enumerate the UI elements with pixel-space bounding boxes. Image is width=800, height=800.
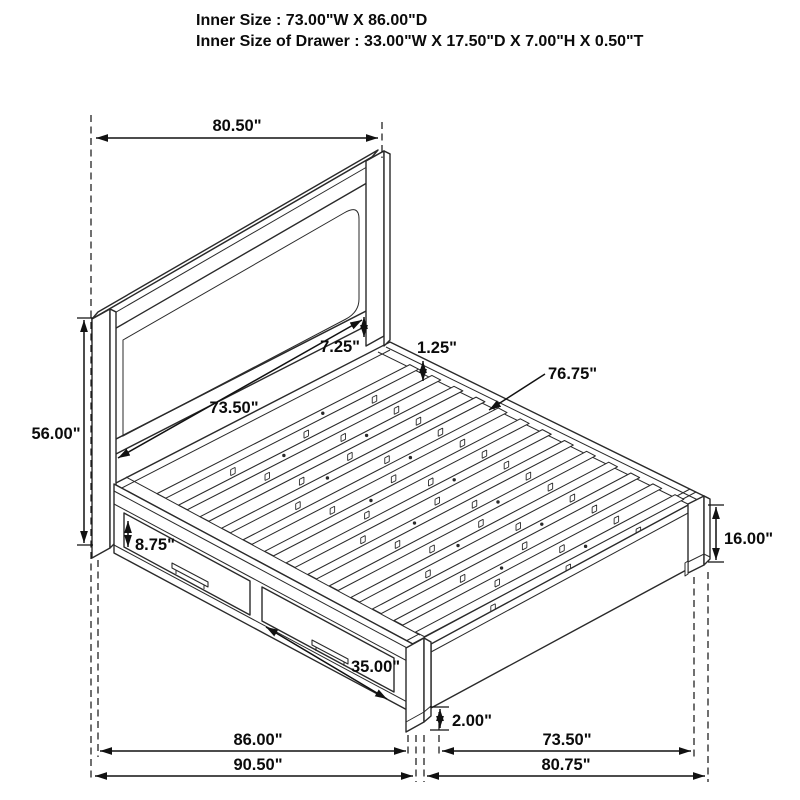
dim-slat-length-label: 76.75"	[548, 365, 597, 383]
title-line-2: Inner Size of Drawer : 33.00"W X 17.50"D…	[196, 33, 644, 50]
dim-headboard-width-label: 80.50"	[212, 117, 261, 135]
dim-slat-thickness-label: 1.25"	[417, 339, 457, 357]
dim-headboard-height: 56.00"	[31, 318, 93, 545]
dim-footboard-inner-width-label: 73.50"	[542, 731, 591, 749]
right-corner-post	[685, 496, 710, 576]
dim-headboard-height-label: 56.00"	[31, 425, 80, 443]
title-line-1: Inner Size : 73.00"W X 86.00"D	[196, 12, 427, 29]
bed-dimension-diagram: 80.50" 56.00" 7.25" 1.25" 73.50" 76.75" …	[0, 0, 800, 800]
dim-footboard-height-label: 16.00"	[724, 530, 773, 548]
dim-footboard-outer-width-label: 80.75"	[541, 756, 590, 774]
dim-footboard-height: 16.00"	[708, 505, 773, 562]
storage-bed-drawing	[92, 150, 710, 732]
dim-side-inner-length-label: 86.00"	[233, 731, 282, 749]
dim-drawer-front-height-label: 8.75"	[135, 536, 175, 554]
dim-side-outer-length-label: 90.50"	[233, 756, 282, 774]
front-corner-post	[406, 638, 431, 732]
diagram-canvas: 80.50" 56.00" 7.25" 1.25" 73.50" 76.75" …	[0, 0, 800, 800]
dim-base-clearance-label: 2.00"	[452, 712, 492, 730]
dim-headboard-inner-width-label: 73.50"	[209, 399, 258, 417]
title-block: Inner Size : 73.00"W X 86.00"D Inner Siz…	[196, 12, 644, 50]
dim-drawer-front-width-label: 35.00"	[351, 658, 400, 676]
headboard-left-post	[92, 309, 116, 558]
dim-headboard-width: 80.50"	[96, 117, 382, 158]
headboard-right-post	[366, 151, 390, 346]
